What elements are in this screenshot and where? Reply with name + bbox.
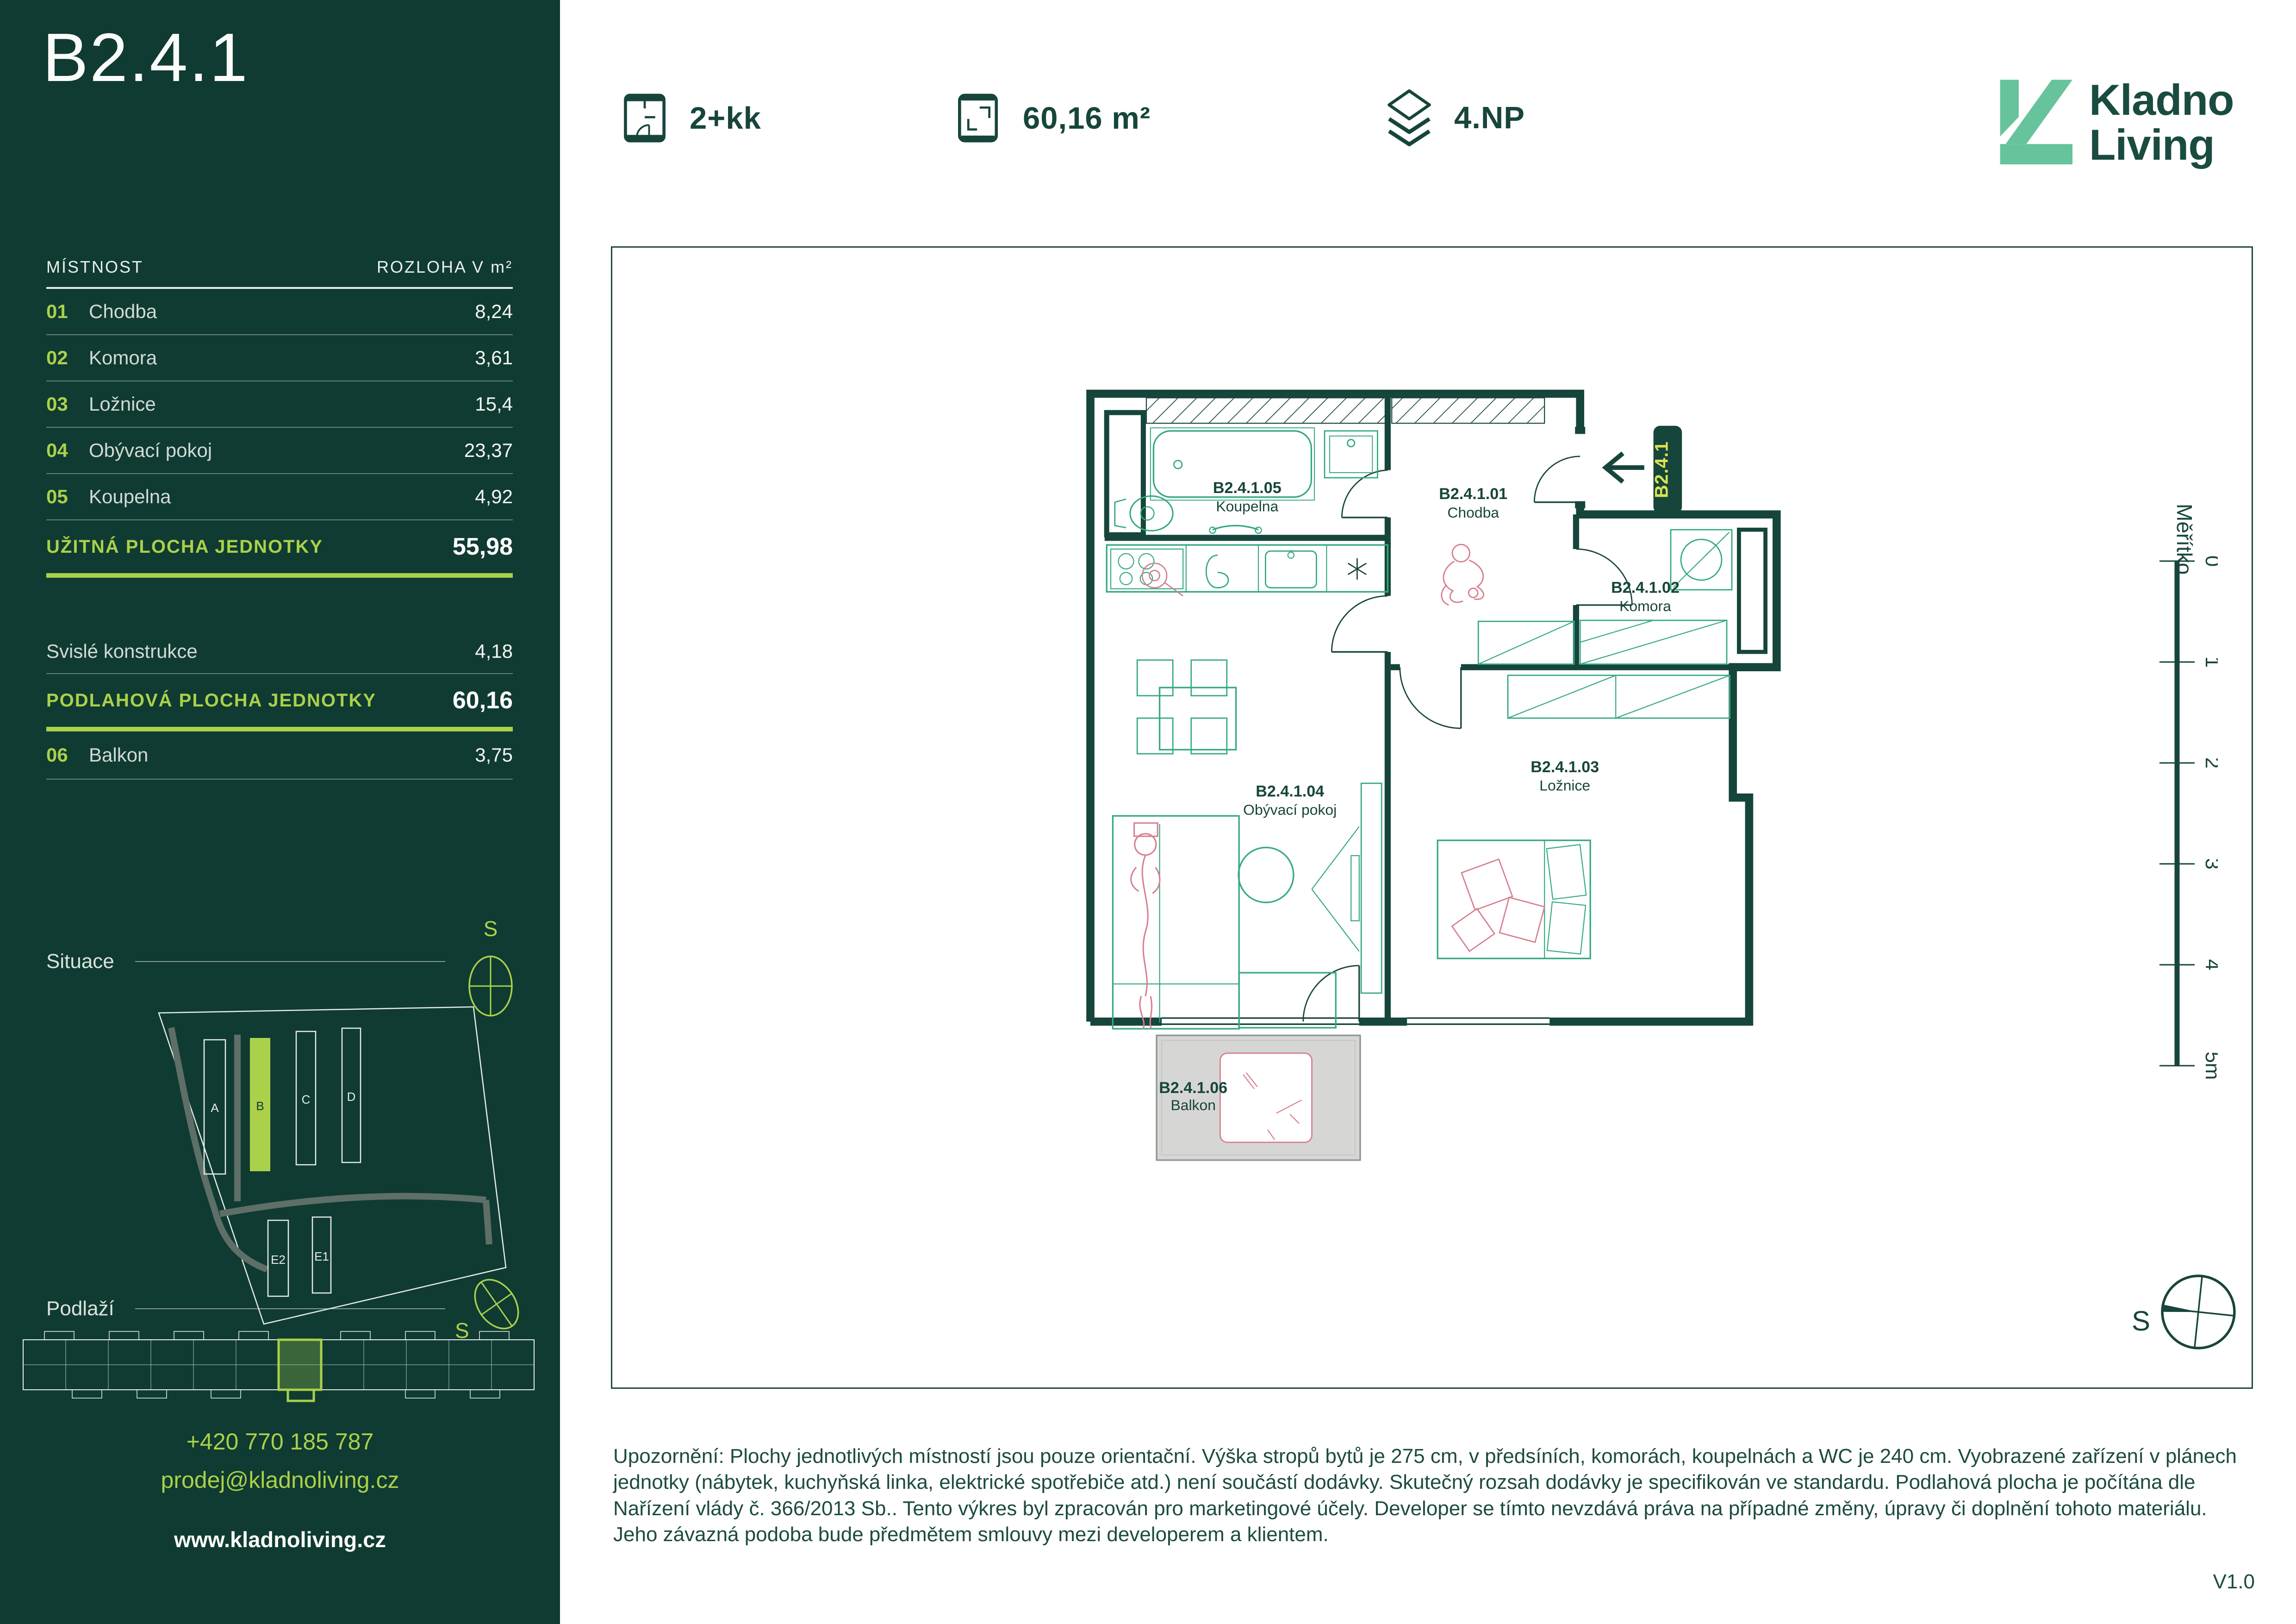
room-balkon-code: B2.4.1.06 xyxy=(1159,1079,1227,1097)
disclaimer-text: Upozornění: Plochy jednotlivých místnost… xyxy=(613,1443,2254,1548)
unit-badge-label: B2.4.1 xyxy=(1651,441,1672,498)
construction-value: 4,18 xyxy=(475,640,513,662)
row-name: Koupelna xyxy=(89,486,475,508)
row-num: 01 xyxy=(46,300,89,323)
bed-blanket xyxy=(1452,859,1544,951)
row-name: Ložnice xyxy=(89,393,475,415)
person-hall xyxy=(1442,544,1484,605)
scale-tick: 5m xyxy=(2201,1051,2218,1080)
floor-area-row: PODLAHOVÁ PLOCHA JEDNOTKY 60,16 xyxy=(46,674,513,727)
layout-icon xyxy=(621,92,669,144)
podlazi-heading: Podlaží xyxy=(46,1297,445,1320)
glazing xyxy=(1162,1018,1549,1024)
col-area-label: ROZLOHA V m² xyxy=(377,257,513,277)
usable-area-row: UŽITNÁ PLOCHA JEDNOTKY 55,98 xyxy=(46,520,513,573)
room-loznice-code: B2.4.1.03 xyxy=(1531,758,1599,776)
floor-strip-map xyxy=(17,1325,541,1408)
table-row: 01 Chodba 8,24 xyxy=(46,289,513,335)
unit-title: B2.4.1 xyxy=(43,19,249,97)
shaft xyxy=(1107,412,1143,535)
hatched-wall xyxy=(1146,398,1386,423)
balcony-row: 06 Balkon 3,75 xyxy=(46,731,513,780)
room-chodba-name: Chodba xyxy=(1447,504,1499,521)
table-row: 03 Ložnice 15,4 xyxy=(46,381,513,428)
fridge-symbol xyxy=(1348,558,1367,580)
row-value: 3,75 xyxy=(475,744,513,766)
area-icon xyxy=(954,92,1002,144)
table-row: 04 Obývací pokoj 23,37 xyxy=(46,428,513,474)
situace-heading: Situace xyxy=(46,950,445,973)
podlazi-label: Podlaží xyxy=(46,1297,114,1320)
compass-letter: S xyxy=(2132,1305,2150,1337)
room-balkon-name: Balkon xyxy=(1170,1097,1216,1113)
table-row: 05 Koupelna 4,92 xyxy=(46,474,513,520)
situace-line xyxy=(135,961,445,962)
row-num: 05 xyxy=(46,486,89,508)
scale-bar: Měřítko 0 1 2 3 4 5m xyxy=(2148,496,2218,1080)
disposition-value: 2+kk xyxy=(690,100,761,136)
row-value: 15,4 xyxy=(475,393,513,415)
komora-fixtures xyxy=(1478,530,1732,664)
row-value: 8,24 xyxy=(475,300,513,323)
room-obyvaci-name: Obývací pokoj xyxy=(1243,801,1337,818)
logo-mark-icon xyxy=(1998,78,2072,173)
row-value: 23,37 xyxy=(464,439,513,462)
table-row: 02 Komora 3,61 xyxy=(46,335,513,381)
floorplan-sheet: B2.4.1 MÍSTNOST ROZLOHA V m² 01 Chodba 8… xyxy=(0,0,2296,1624)
scale-tick: 4 xyxy=(2201,959,2218,970)
person-sofa xyxy=(1131,823,1160,1029)
room-table-header: MÍSTNOST ROZLOHA V m² xyxy=(46,257,513,287)
building-d-label: D xyxy=(347,1090,356,1104)
floor-value: 4.NP xyxy=(1454,100,1525,136)
komora-closet xyxy=(1739,530,1765,652)
scale-tick: 1 xyxy=(2201,656,2218,668)
entrance-arrow-icon xyxy=(1605,453,1644,482)
row-num: 02 xyxy=(46,347,89,369)
podlazi-line xyxy=(135,1308,445,1309)
row-name: Chodba xyxy=(89,300,475,323)
contact-email: prodej@kladnoliving.cz xyxy=(0,1467,560,1493)
spec-floor: 4.NP xyxy=(1385,88,1525,147)
contact-phone: +420 770 185 787 xyxy=(0,1428,560,1455)
building-c-label: C xyxy=(302,1093,311,1106)
version-label: V1.0 xyxy=(2147,1570,2255,1593)
room-koupelna-code: B2.4.1.05 xyxy=(1213,479,1282,497)
usable-area-value: 55,98 xyxy=(453,533,513,561)
row-num: 06 xyxy=(46,744,89,766)
col-room-label: MÍSTNOST xyxy=(46,257,143,277)
building-e1-label: E1 xyxy=(314,1249,329,1263)
logo-text: Kladno Living xyxy=(2089,78,2234,168)
row-name: Obývací pokoj xyxy=(89,439,464,462)
compass-letter: S xyxy=(484,917,498,941)
sidebar: B2.4.1 MÍSTNOST ROZLOHA V m² 01 Chodba 8… xyxy=(0,0,560,1624)
usable-area-label: UŽITNÁ PLOCHA JEDNOTKY xyxy=(46,537,323,557)
unit-badge: B2.4.1 xyxy=(1651,426,1682,513)
scale-tick: 3 xyxy=(2201,858,2218,869)
kladno-living-logo: Kladno Living xyxy=(1998,78,2234,173)
building-a-label: A xyxy=(211,1101,219,1115)
highlighted-unit-balcony xyxy=(288,1390,314,1401)
row-name: Balkon xyxy=(89,744,475,766)
construction-label: Svislé konstrukce xyxy=(46,640,198,662)
room-komora-name: Komora xyxy=(1619,598,1671,614)
room-table: MÍSTNOST ROZLOHA V m² 01 Chodba 8,24 02 … xyxy=(46,257,513,780)
room-koupelna-name: Koupelna xyxy=(1216,498,1278,515)
area-value: 60,16 m² xyxy=(1023,100,1151,136)
room-chodba-code: B2.4.1.01 xyxy=(1439,485,1507,503)
situace-label: Situace xyxy=(46,950,114,973)
kitchen xyxy=(1107,545,1388,592)
lime-divider xyxy=(46,727,513,731)
logo-line2: Living xyxy=(2089,123,2234,168)
floor-area-label: PODLAHOVÁ PLOCHA JEDNOTKY xyxy=(46,690,376,711)
lime-divider xyxy=(46,573,513,578)
floor-area-value: 60,16 xyxy=(453,687,513,714)
spec-area: 60,16 m² xyxy=(954,92,1151,144)
row-name: Komora xyxy=(89,347,475,369)
interior-walls xyxy=(1105,394,1733,1022)
logo-line1: Kladno xyxy=(2089,78,2234,123)
scale-tick: 0 xyxy=(2201,556,2218,567)
row-num: 04 xyxy=(46,439,89,462)
scale-tick: 2 xyxy=(2201,757,2218,768)
building-e2-label: E2 xyxy=(271,1253,286,1267)
room-komora-code: B2.4.1.02 xyxy=(1611,579,1680,597)
plan-compass-icon: S xyxy=(2116,1255,2246,1371)
site-roads xyxy=(171,1028,489,1269)
spec-disposition: 2+kk xyxy=(621,92,761,144)
highlighted-unit xyxy=(279,1340,321,1390)
balcony-rug xyxy=(1220,1053,1312,1143)
construction-row: Svislé konstrukce 4,18 xyxy=(46,630,513,674)
hatched-wall xyxy=(1392,398,1544,423)
room-obyvaci-code: B2.4.1.04 xyxy=(1256,783,1324,800)
contact-web: www.kladnoliving.cz xyxy=(0,1527,560,1552)
row-num: 03 xyxy=(46,393,89,415)
room-loznice-name: Ložnice xyxy=(1539,777,1590,793)
row-value: 4,92 xyxy=(475,486,513,508)
living-furniture xyxy=(1113,660,1381,1029)
floors-icon xyxy=(1385,88,1434,147)
floor-plan: B2.4.1 xyxy=(1060,366,1925,1333)
row-value: 3,61 xyxy=(475,347,513,369)
building-b-label: B xyxy=(256,1099,264,1113)
